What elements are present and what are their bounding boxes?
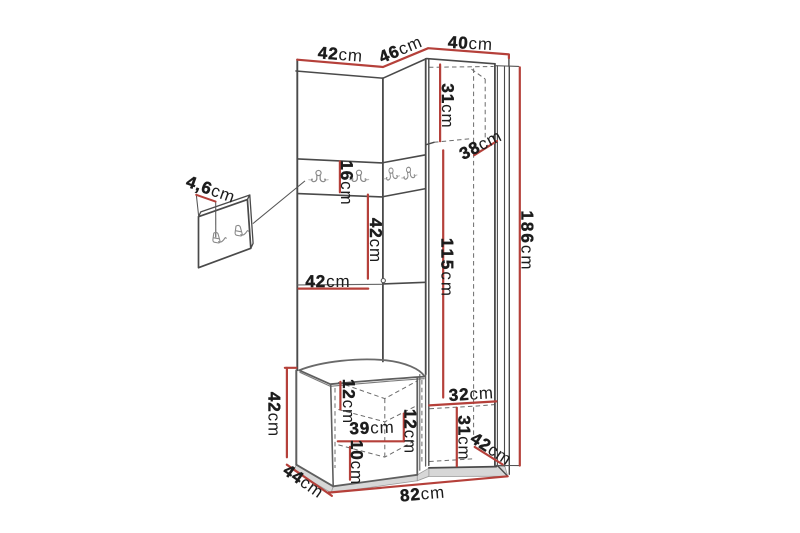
svg-text:12cm: 12cm bbox=[401, 409, 420, 454]
svg-text:39cm: 39cm bbox=[349, 417, 395, 438]
svg-text:42cm: 42cm bbox=[265, 392, 284, 437]
svg-text:12cm: 12cm bbox=[339, 379, 358, 424]
svg-text:115cm: 115cm bbox=[438, 238, 457, 298]
svg-text:31cm: 31cm bbox=[439, 83, 458, 128]
svg-text:10cm: 10cm bbox=[347, 440, 366, 485]
svg-text:40cm: 40cm bbox=[447, 32, 493, 53]
svg-text:32cm: 32cm bbox=[448, 383, 494, 405]
svg-text:42cm: 42cm bbox=[317, 43, 364, 65]
svg-text:42cm: 42cm bbox=[305, 272, 350, 291]
svg-text:186cm: 186cm bbox=[518, 210, 537, 271]
svg-text:16cm: 16cm bbox=[337, 160, 356, 205]
svg-text:42cm: 42cm bbox=[367, 218, 386, 263]
svg-text:82cm: 82cm bbox=[399, 482, 446, 505]
